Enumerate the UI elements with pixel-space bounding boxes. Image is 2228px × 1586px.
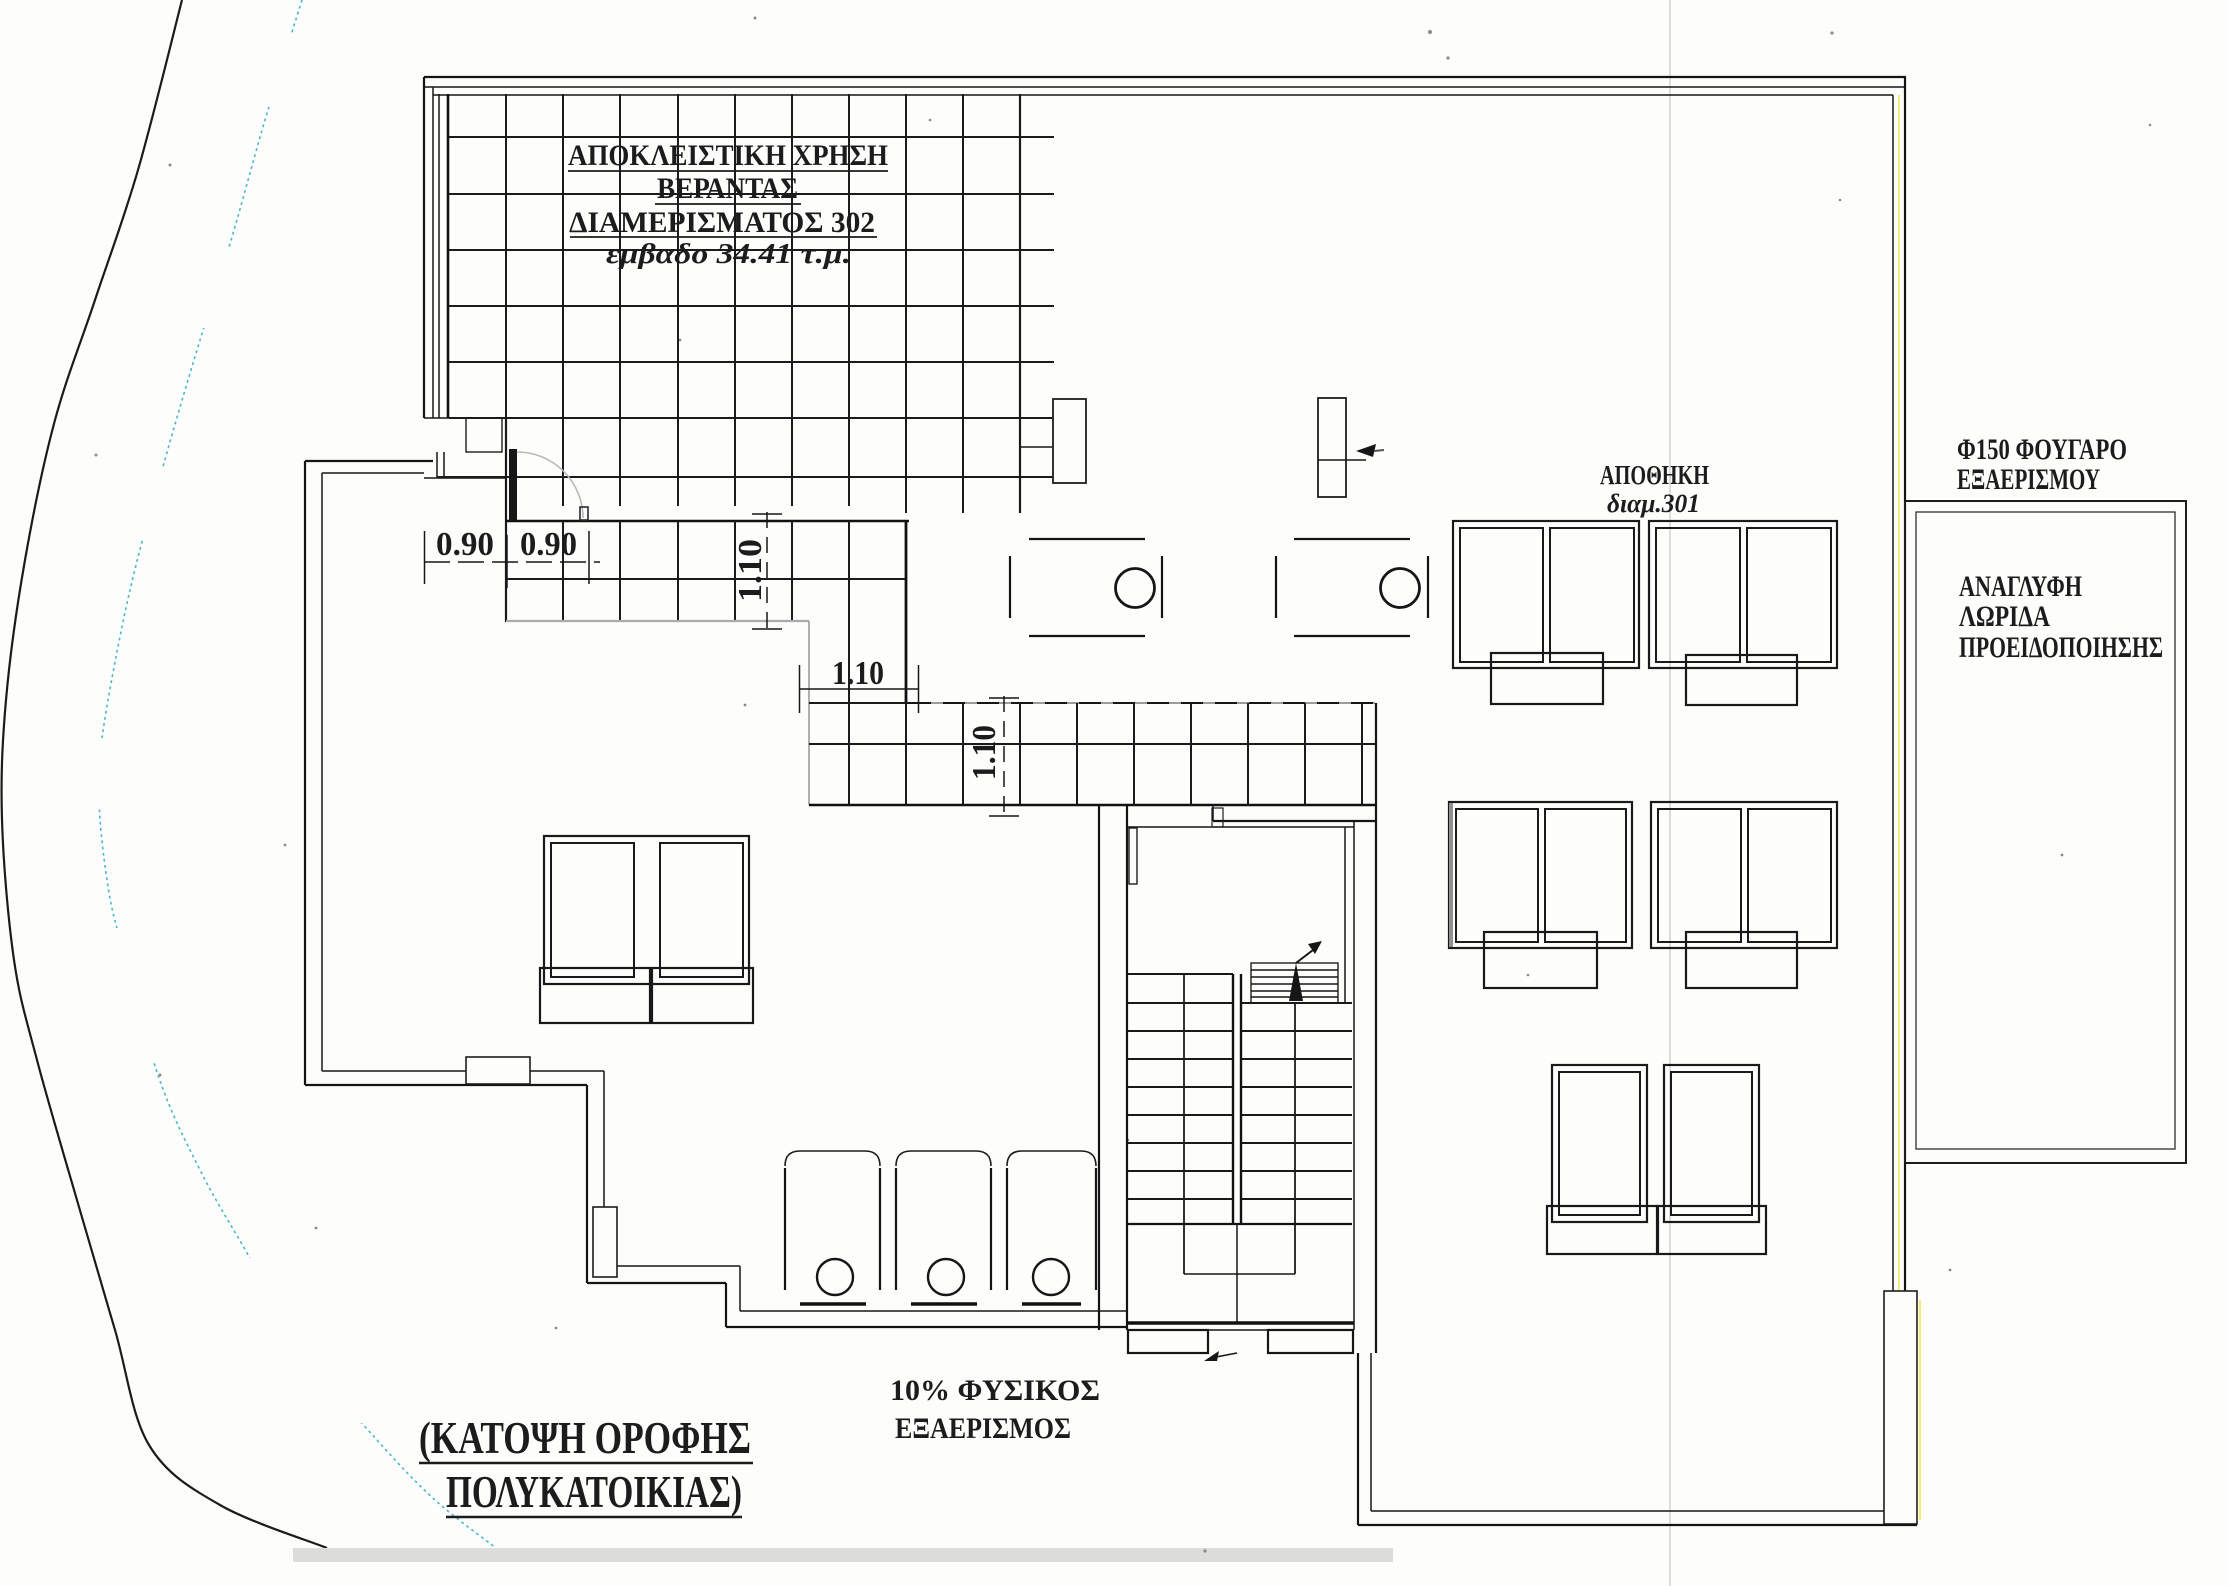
svg-text:ΒΕΡΑΝΤΑΣ: ΒΕΡΑΝΤΑΣ (657, 172, 798, 205)
svg-text:ΑΝΑΓΛΥΦΗ: ΑΝΑΓΛΥΦΗ (1959, 570, 2082, 603)
svg-text:ΑΠΟΚΛΕΙΣΤΙΚΗ ΧΡΗΣΗ: ΑΠΟΚΛΕΙΣΤΙΚΗ ΧΡΗΣΗ (568, 139, 888, 172)
svg-text:1.10: 1.10 (966, 725, 1003, 780)
svg-text:0.90: 0.90 (436, 526, 494, 563)
svg-text:ΑΠΟΘΗΚΗ: ΑΠΟΘΗΚΗ (1600, 460, 1709, 490)
svg-text:ΛΩΡΙΔΑ: ΛΩΡΙΔΑ (1959, 600, 2050, 633)
svg-text:εμβαδο 34.41 τ.μ.: εμβαδο 34.41 τ.μ. (606, 238, 851, 270)
svg-text:ΕΞΑΕΡΙΣΜΟΥ: ΕΞΑΕΡΙΣΜΟΥ (1957, 463, 2100, 496)
svg-text:0.90: 0.90 (520, 526, 577, 563)
svg-text:1.10: 1.10 (732, 539, 769, 602)
svg-text:1.10: 1.10 (832, 655, 884, 692)
svg-text:10% ΦΥΣΙΚΟΣ: 10% ΦΥΣΙΚΟΣ (890, 1374, 1100, 1407)
svg-text:ΠΟΛΥΚΑΤΟΙΚΙΑΣ): ΠΟΛΥΚΑΤΟΙΚΙΑΣ) (446, 1466, 742, 1517)
svg-text:ΔΙΑΜΕΡΙΣΜΑΤΟΣ 302: ΔΙΑΜΕΡΙΣΜΑΤΟΣ 302 (569, 206, 875, 239)
svg-text:διαμ.301: διαμ.301 (1607, 489, 1700, 518)
svg-text:Φ150 ΦΟΥΓΑΡΟ: Φ150 ΦΟΥΓΑΡΟ (1957, 433, 2127, 466)
svg-text:ΕΞΑΕΡΙΣΜΟΣ: ΕΞΑΕΡΙΣΜΟΣ (895, 1412, 1071, 1445)
svg-text:(ΚΑΤΟΨΗ ΟΡΟΦΗΣ: (ΚΑΤΟΨΗ ΟΡΟΦΗΣ (419, 1412, 751, 1463)
svg-text:ΠΡΟΕΙΔΟΠΟΙΗΣΗΣ: ΠΡΟΕΙΔΟΠΟΙΗΣΗΣ (1959, 631, 2163, 664)
